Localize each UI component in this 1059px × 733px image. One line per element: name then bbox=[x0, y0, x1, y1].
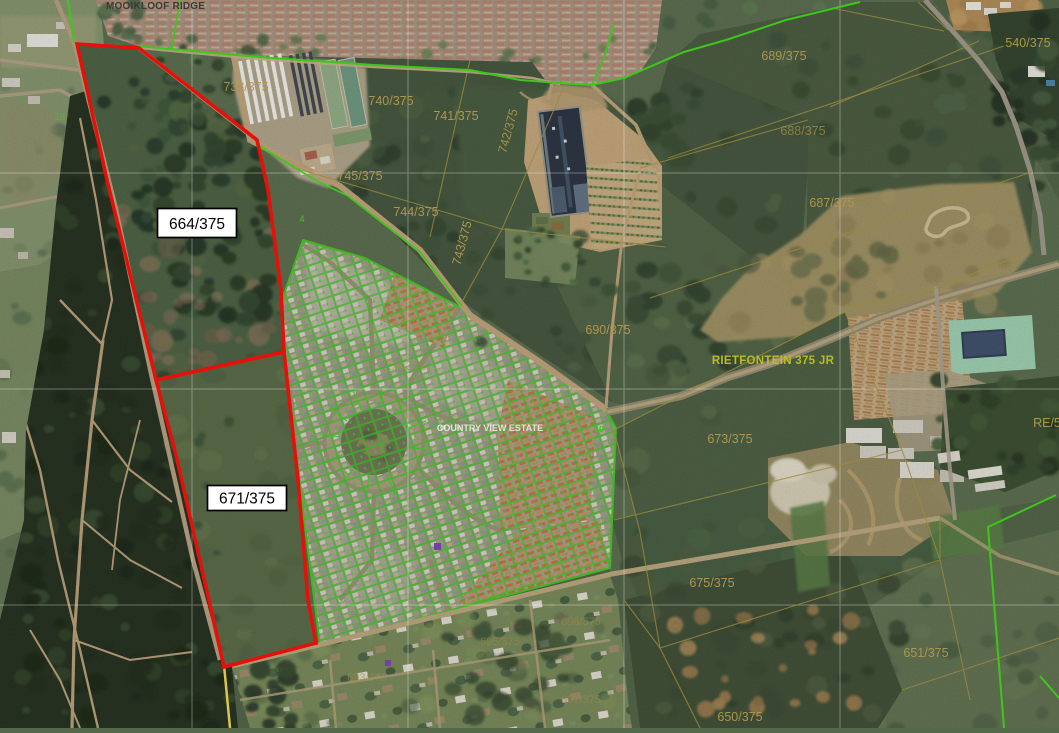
svg-text:540/375: 540/375 bbox=[1005, 36, 1050, 50]
svg-text:13: 13 bbox=[55, 112, 65, 122]
svg-text:50: 50 bbox=[594, 424, 604, 434]
svg-text:697/375: 697/375 bbox=[561, 694, 601, 706]
svg-text:651/375: 651/375 bbox=[903, 646, 948, 660]
svg-text:754/375: 754/375 bbox=[381, 359, 426, 373]
svg-text:4: 4 bbox=[299, 214, 304, 224]
svg-text:696/375: 696/375 bbox=[561, 616, 601, 628]
svg-text:695/375: 695/375 bbox=[480, 636, 520, 648]
svg-text:671/375: 671/375 bbox=[219, 491, 275, 508]
svg-text:673/375: 673/375 bbox=[707, 432, 752, 446]
svg-text:687/375: 687/375 bbox=[809, 196, 854, 210]
svg-text:690/375: 690/375 bbox=[585, 323, 630, 337]
svg-text:RIETFONTEIN 375 JR: RIETFONTEIN 375 JR bbox=[712, 355, 835, 367]
svg-text:744/375: 744/375 bbox=[393, 205, 438, 219]
svg-text:693/375: 693/375 bbox=[347, 672, 387, 684]
svg-text:740/375: 740/375 bbox=[368, 94, 413, 108]
svg-text:689/375: 689/375 bbox=[761, 49, 806, 63]
svg-text:MOOIKLOOF RIDGE: MOOIKLOOF RIDGE bbox=[106, 1, 205, 12]
svg-text:664/375: 664/375 bbox=[169, 216, 225, 233]
svg-text:675/375: 675/375 bbox=[689, 576, 734, 590]
svg-text:745/375: 745/375 bbox=[337, 169, 382, 183]
svg-text:RE/5: RE/5 bbox=[1033, 416, 1059, 430]
svg-text:COUNTRY VIEW ESTATE: COUNTRY VIEW ESTATE bbox=[437, 423, 543, 433]
svg-text:738/375: 738/375 bbox=[223, 80, 268, 94]
svg-text:741/375: 741/375 bbox=[433, 109, 478, 123]
svg-text:650/375: 650/375 bbox=[717, 710, 762, 724]
svg-text:688/375: 688/375 bbox=[780, 124, 825, 138]
